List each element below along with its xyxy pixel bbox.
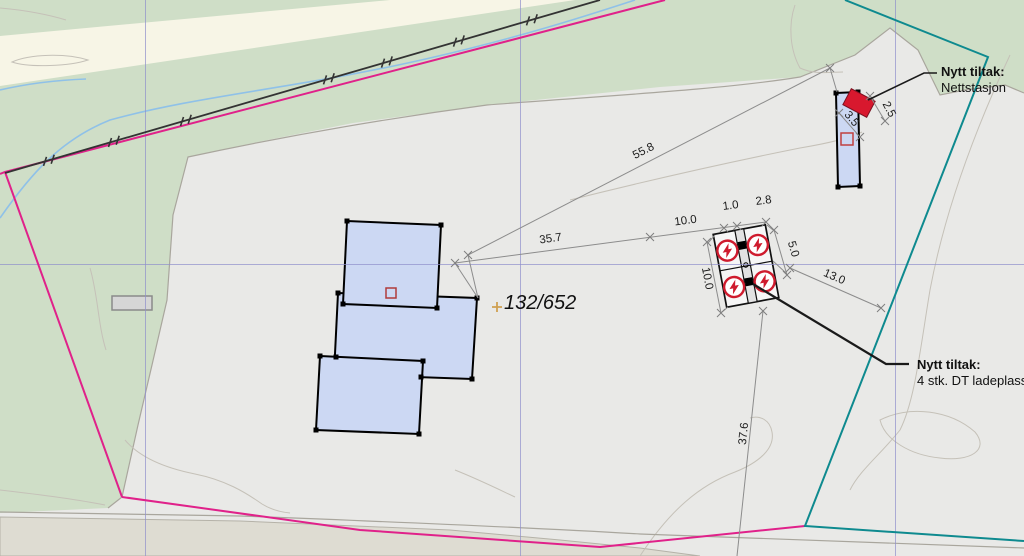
- corner-marker: [334, 355, 339, 360]
- site-plan-map[interactable]: 55.8 35.7 10.0 1.0 2.8 5.0 10.0 13.0 37.…: [0, 0, 1024, 556]
- corner-marker: [318, 354, 323, 359]
- corner-marker: [417, 432, 422, 437]
- corner-marker: [336, 291, 341, 296]
- corner-marker: [470, 377, 475, 382]
- annotation-subtitle: 4 stk. DT ladeplasser: [917, 373, 1024, 388]
- building-lower: [316, 356, 423, 434]
- dim-label-37-6: 37.6: [737, 422, 751, 446]
- annotation-nettstasjon: Nytt tiltak: Nettstasjon: [941, 64, 1006, 95]
- charger-unit: [738, 241, 747, 250]
- corner-marker: [421, 359, 426, 364]
- map-canvas[interactable]: 55.8 35.7 10.0 1.0 2.8 5.0 10.0 13.0 37.…: [0, 0, 1024, 556]
- corner-marker: [419, 375, 424, 380]
- charger-unit: [744, 277, 753, 286]
- annotation-title: Nytt tiltak:: [941, 64, 1005, 79]
- corner-marker: [345, 219, 350, 224]
- corner-marker: [314, 428, 319, 433]
- dim-label-2-8: 2.8: [755, 194, 772, 208]
- dim-label-1-0: 1.0: [722, 199, 739, 213]
- corner-marker: [834, 91, 839, 96]
- corner-marker: [435, 306, 440, 311]
- corner-marker: [341, 302, 346, 307]
- parcel-label-group: 132/652: [492, 292, 576, 314]
- corner-marker: [439, 223, 444, 228]
- corner-marker: [836, 185, 841, 190]
- annotation-title: Nytt tiltak:: [917, 357, 981, 372]
- corner-marker: [858, 184, 863, 189]
- annotation-subtitle: Nettstasjon: [941, 80, 1006, 95]
- parcel-number: 132/652: [504, 292, 576, 314]
